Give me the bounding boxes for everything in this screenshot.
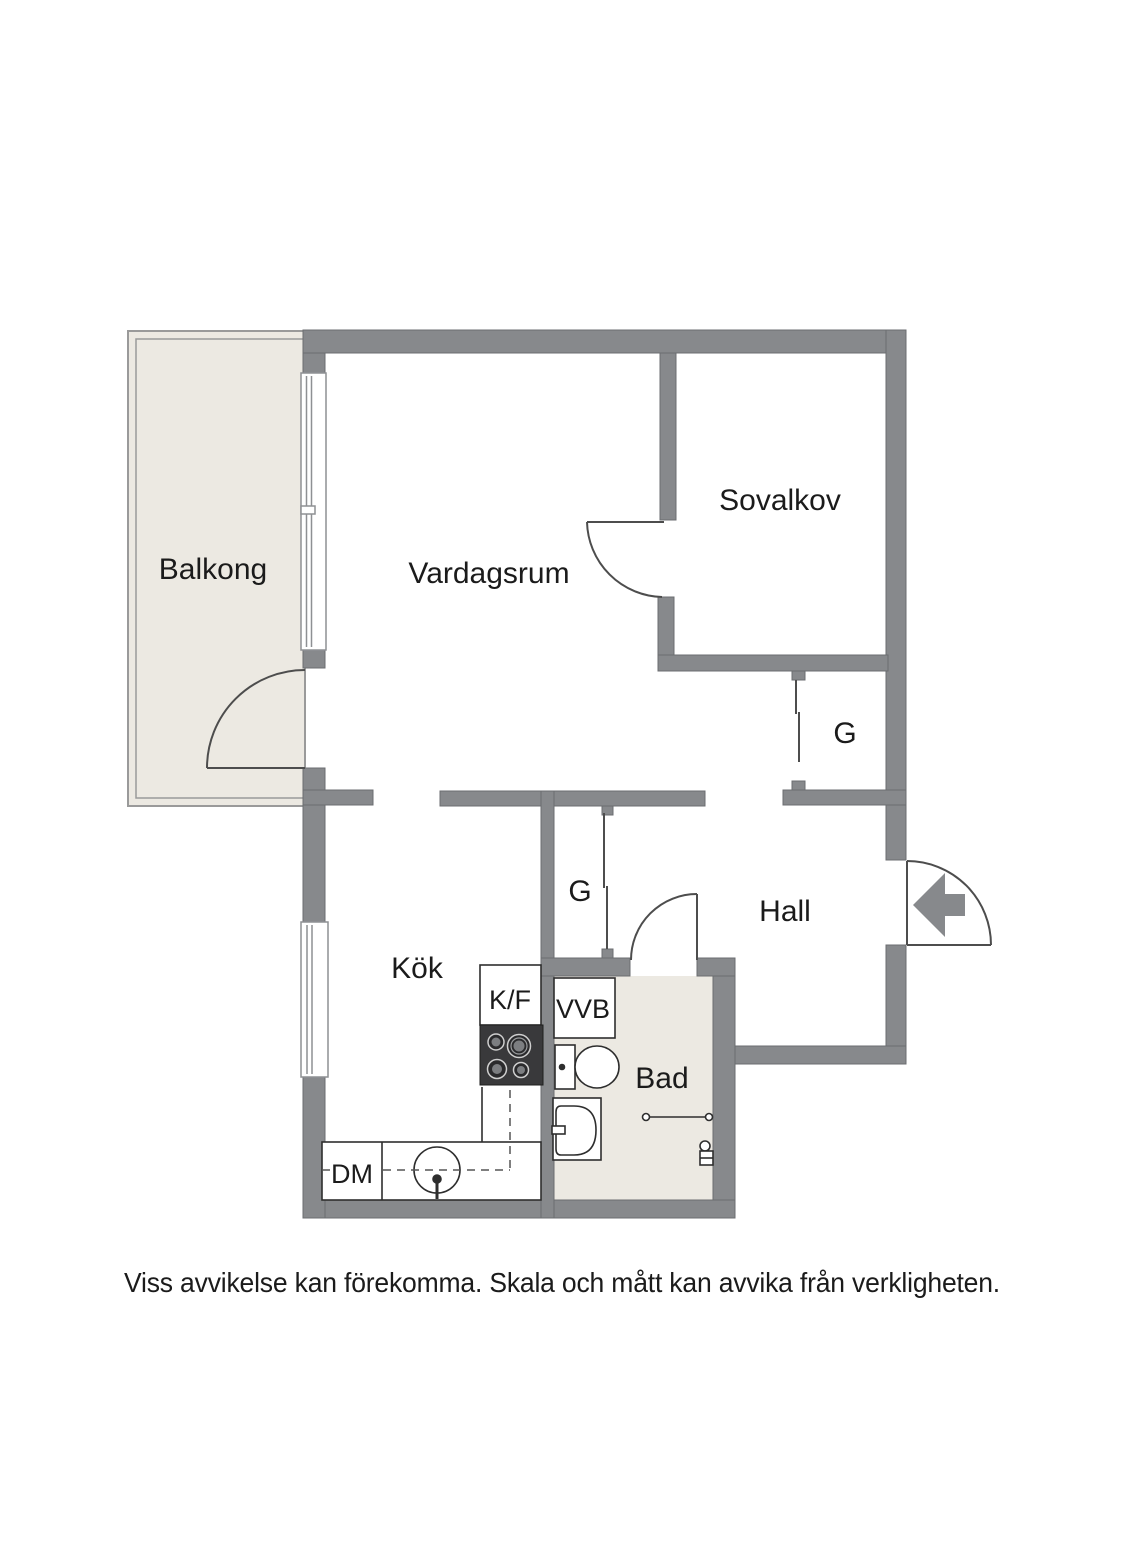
wall-segment [303, 790, 373, 805]
shower-rail-end [706, 1114, 713, 1121]
wall-segment [660, 353, 676, 520]
wall-segment [303, 353, 325, 373]
floorplan-canvas: Balkong Vardagsrum Sovalkov G G Hall Kök… [0, 0, 1124, 1561]
label-bathroom: Bad [635, 1062, 688, 1095]
burner-center [492, 1038, 501, 1047]
label-wardrobe-top: G [833, 717, 856, 750]
label-sleeping-alcove: Sovalkov [719, 484, 841, 517]
entry-arrow-icon [913, 873, 965, 937]
burner-center [492, 1064, 502, 1074]
label-living-room: Vardagsrum [408, 557, 569, 590]
window-divider [301, 506, 315, 514]
label-water-heater: VVB [556, 994, 610, 1024]
label-hall: Hall [759, 895, 811, 928]
wall-segment [886, 330, 906, 860]
toilet-bowl [575, 1046, 619, 1088]
accent-floors [128, 331, 713, 1200]
burner-center [517, 1066, 525, 1074]
bathroom-door-swing-arc [631, 894, 697, 960]
washbasin-tap [552, 1126, 565, 1134]
label-balcony: Balkong [159, 553, 267, 586]
stove [480, 1025, 543, 1085]
wall-segment [303, 330, 906, 353]
sink-drain [433, 1175, 441, 1183]
wall-segment [440, 791, 705, 806]
burner-center [514, 1041, 525, 1052]
shower-rail-end [643, 1114, 650, 1121]
wall-segment [541, 958, 630, 976]
wall-segment [713, 960, 735, 1218]
closet-track-notch [792, 781, 805, 790]
label-wardrobe-mid: G [568, 875, 591, 908]
label-kitchen: Kök [391, 952, 444, 985]
wall-segment [303, 1200, 735, 1218]
closet-track-notch [792, 671, 805, 680]
disclaimer-text: Viss avvikelse kan förekomma. Skala och … [124, 1267, 1000, 1298]
shower-mixer-icon [700, 1141, 710, 1151]
closet-track-notch [602, 949, 613, 958]
wall-segment [783, 790, 906, 805]
label-dishwasher: DM [331, 1159, 373, 1189]
toilet-flush-dot [560, 1065, 565, 1070]
wall-segment [713, 1046, 906, 1064]
wall-segment [697, 958, 735, 976]
wall-segment [541, 791, 554, 1218]
floorplan-svg: Balkong Vardagsrum Sovalkov G G Hall Kök… [0, 0, 1124, 1561]
wall-segment [303, 650, 325, 668]
alcove-door-swing-arc [587, 522, 662, 597]
label-fridge-freezer: K/F [489, 985, 531, 1015]
kitchen-window [301, 922, 328, 1077]
wall-segment [658, 655, 888, 671]
